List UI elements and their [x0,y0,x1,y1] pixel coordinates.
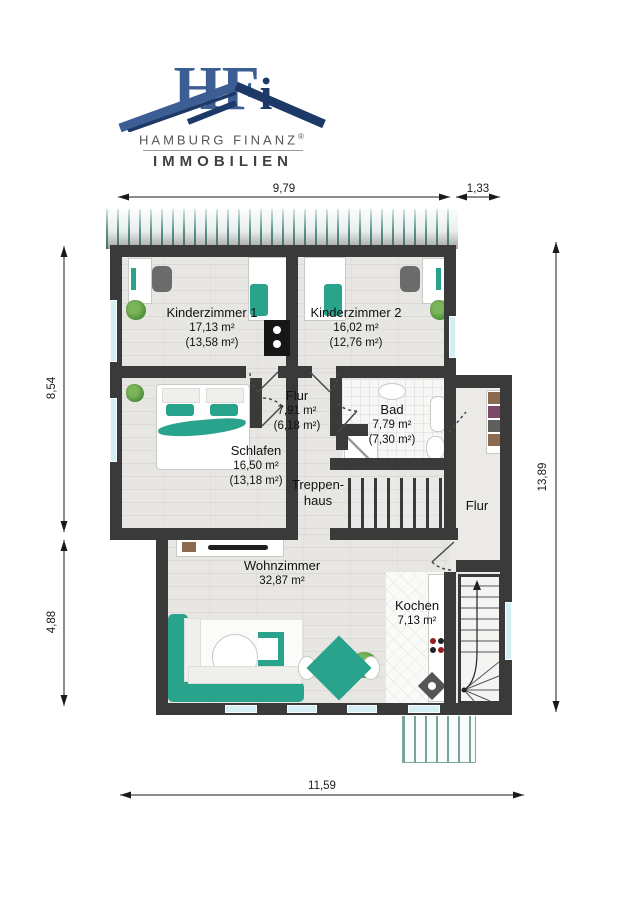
room-name: haus [292,493,344,509]
walkline-arrow-up-icon [473,580,481,590]
arrow [513,792,524,799]
label-flur: Flur 7,91 m² (6,18 m²) [274,388,321,433]
dim-label-top-main: 9,79 [273,183,295,195]
door-leaf-flur-wohnzimmer [432,542,454,562]
dim-label-top-right: 1,33 [467,183,489,195]
label-bad: Bad 7,79 m² (7,30 m²) [369,402,416,447]
walkline-start-dot [462,688,467,693]
room-name: Treppen- [292,477,344,493]
room-area: 16,02 m² [310,321,401,335]
arrow [61,695,68,706]
arrow [118,194,129,201]
room-name: Flur [466,498,488,514]
walkline-path [464,586,477,690]
arrow [61,246,68,257]
label-wohnzimmer: Wohnzimmer 32,87 m² [244,558,320,589]
room-name: Kinderzimmer 1 [166,305,257,321]
room-name: Kochen [395,598,439,614]
floorplan-page: HFi HAMBURG FINANZ® IMMOBILIEN [0,0,636,900]
label-kochen: Kochen 7,13 m² [395,598,439,629]
winder [464,690,490,701]
door-arc-bad [338,404,357,411]
room-area: 7,13 m² [395,614,439,628]
room-area: 17,13 m² [166,321,257,335]
room-area: 32,87 m² [244,574,320,588]
plan-annotations [0,0,636,900]
door-leaf-bad [338,411,357,432]
arrow [61,521,68,532]
door-arc-k2 [330,372,338,392]
arrow [489,194,500,201]
room-name: Schlafen [229,443,282,459]
label-kinderzimmer1: Kinderzimmer 1 17,13 m² (13,58 m²) [166,305,257,350]
dim-label-right: 13,89 [537,463,549,492]
room-name: Wohnzimmer [244,558,320,574]
room-area-reduced: (7,30 m²) [369,433,416,447]
label-flur-right: Flur [466,498,488,514]
room-name: Kinderzimmer 2 [310,305,401,321]
room-area-reduced: (13,18 m²) [229,474,282,488]
room-name: Bad [369,402,416,418]
label-schlafen: Schlafen 16,50 m² (13,18 m²) [229,443,282,488]
stair-treads [461,586,499,701]
door-arc-flur-wohnzimmer [432,562,454,570]
dim-label-left-upper: 8,54 [46,377,58,399]
room-area: 7,91 m² [274,404,321,418]
arrow [120,792,131,799]
arrow [439,194,450,201]
arrow [456,194,467,201]
room-area: 16,50 m² [229,459,282,473]
room-area: 7,79 m² [369,418,416,432]
label-kinderzimmer2: Kinderzimmer 2 16,02 m² (12,76 m²) [310,305,401,350]
room-area-reduced: (12,76 m²) [310,336,401,350]
room-area-reduced: (6,18 m²) [274,419,321,433]
dim-label-left-lower: 4,88 [46,611,58,633]
arrow [553,701,560,712]
room-area-reduced: (13,58 m²) [166,336,257,350]
door-leaf-bad-flur [449,412,466,432]
door-arc-k1 [250,372,258,392]
room-name: Flur [274,388,321,404]
dim-label-bottom: 11,59 [308,780,336,792]
arrow [553,242,560,253]
winder [464,676,499,690]
arrow [61,540,68,551]
label-treppenhaus: Treppen- haus [292,477,344,510]
